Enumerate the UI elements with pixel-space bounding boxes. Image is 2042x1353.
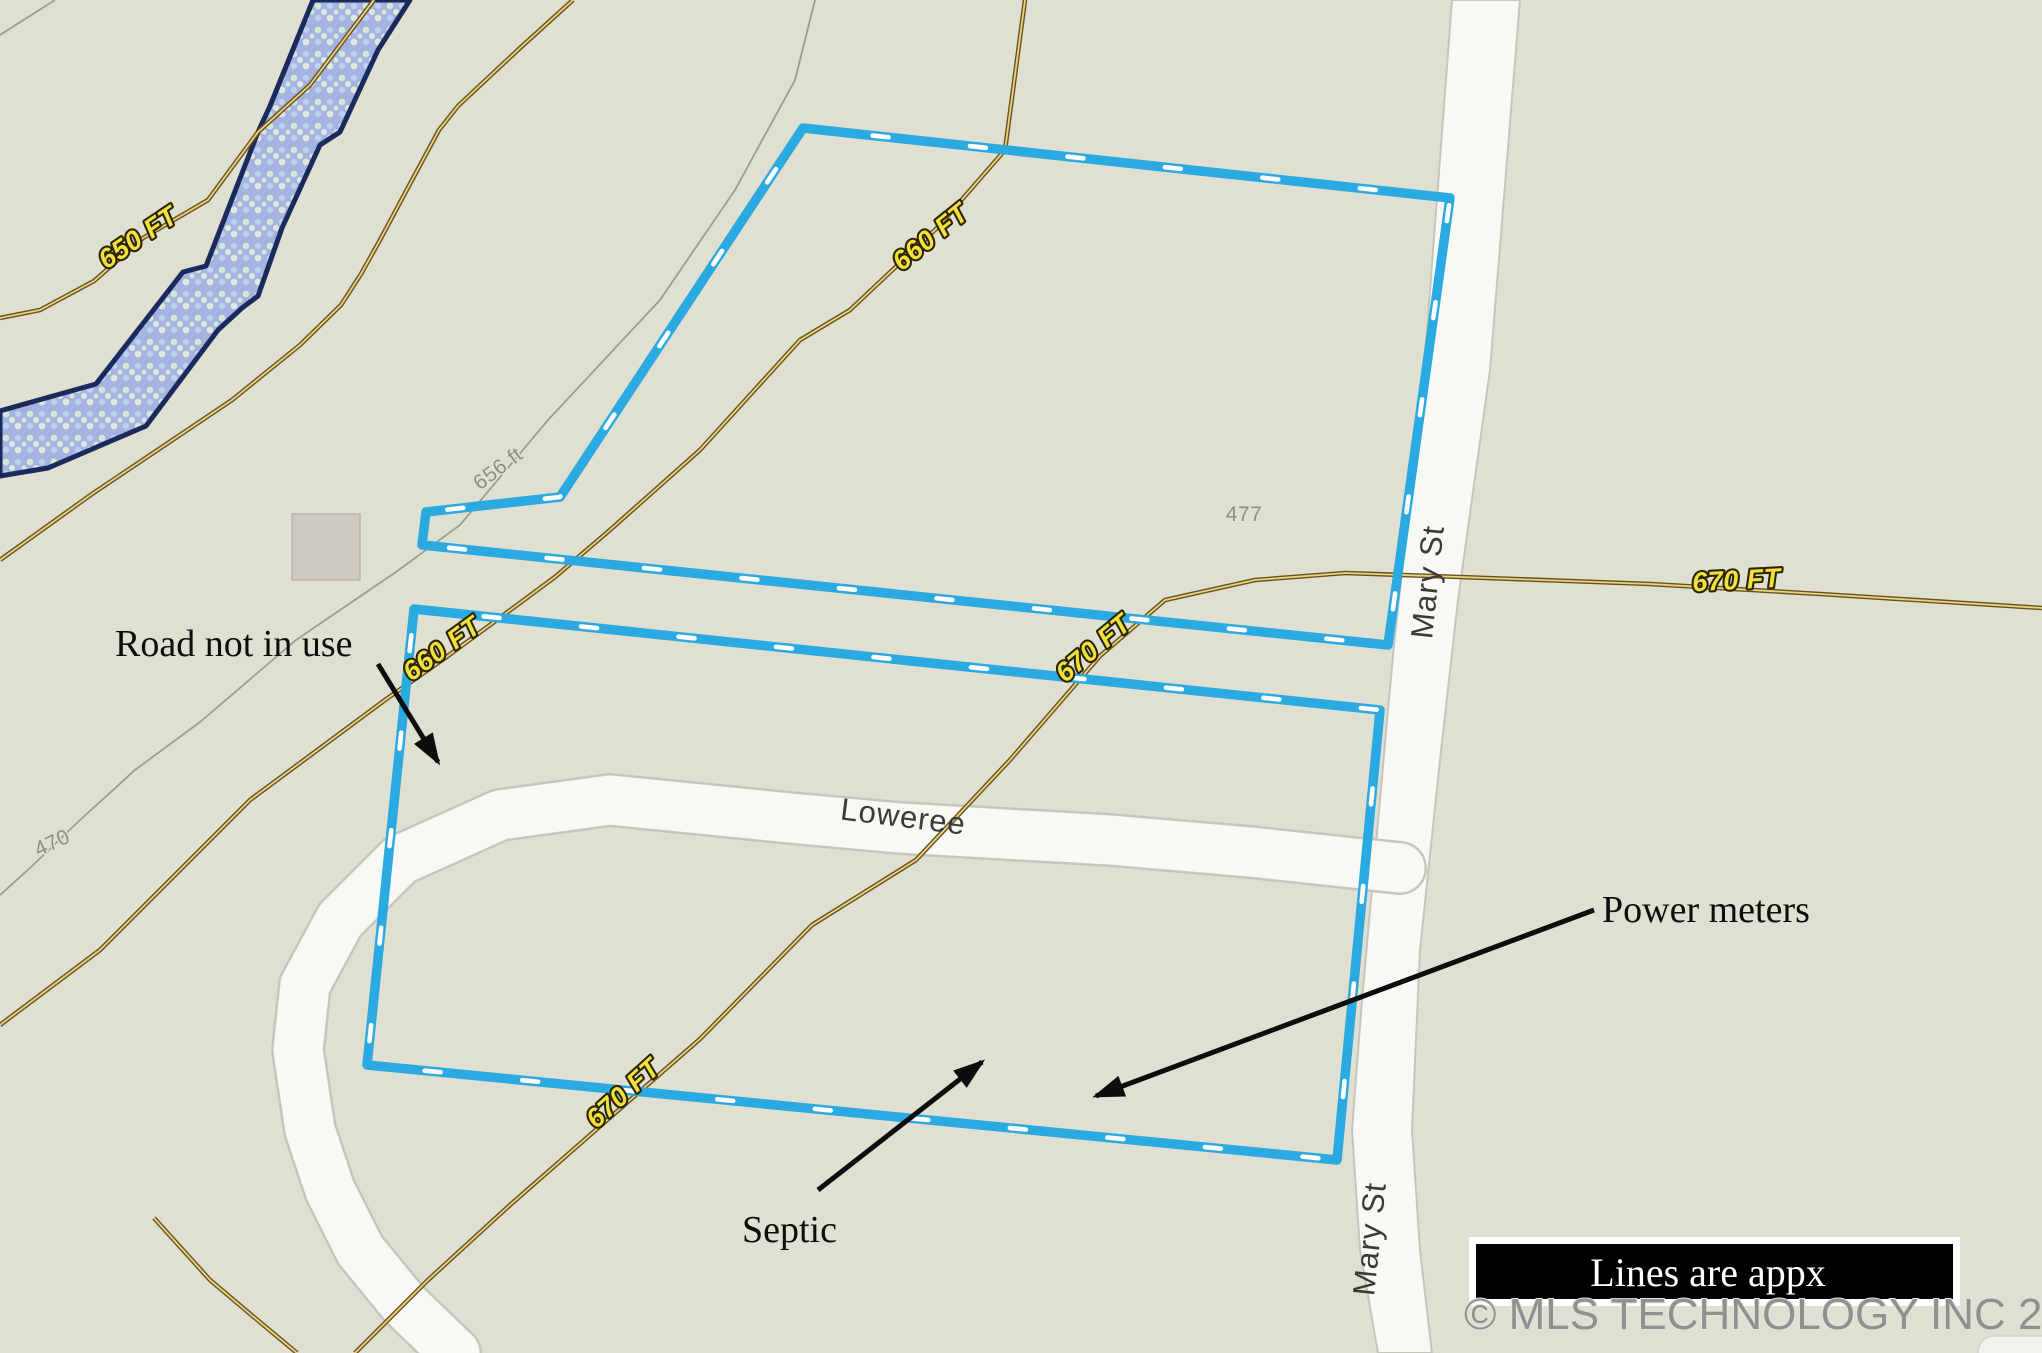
building-footprint [292, 514, 360, 580]
map-viewport: 650 FT 660 FT 660 FT 670 FT 670 FT 670 F… [0, 0, 2042, 1353]
legend-text: Lines are appx [1590, 1250, 1825, 1295]
annotation-septic: Septic [742, 1209, 837, 1251]
contour-label-670ft-1: 670 FT [1692, 563, 1784, 598]
map-control-pill[interactable] [1978, 1336, 2042, 1353]
annotation-power-meters: Power meters [1602, 889, 1810, 931]
annotation-road-not-in-use: Road not in use [115, 623, 352, 665]
elevation-label-477: 477 [1226, 503, 1263, 526]
watermark-copyright: © MLS TECHNOLOGY INC 2025 [1464, 1290, 2042, 1339]
map-canvas[interactable]: 650 FT 660 FT 660 FT 670 FT 670 FT 670 F… [0, 0, 2042, 1353]
